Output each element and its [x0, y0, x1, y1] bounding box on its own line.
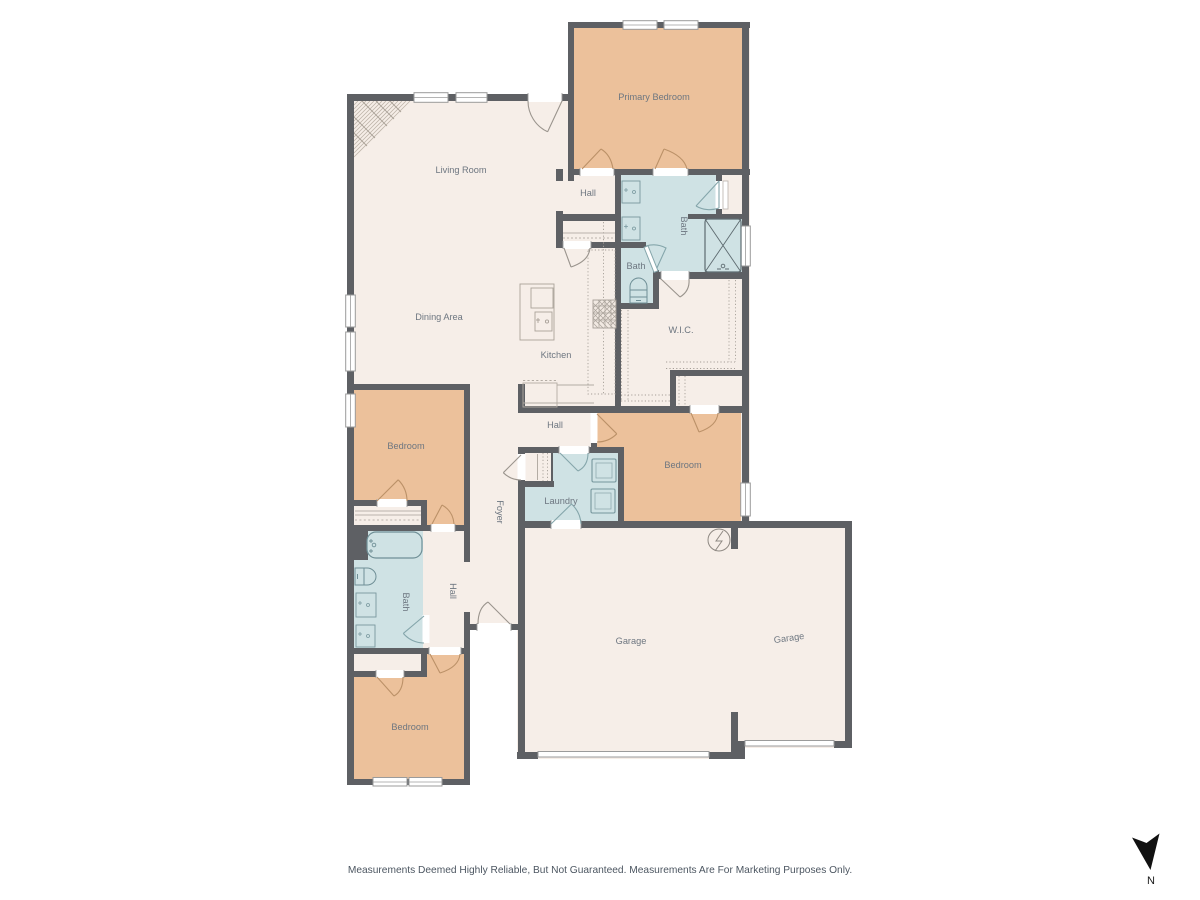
svg-text:Primary Bedroom: Primary Bedroom	[618, 92, 690, 102]
svg-text:Bedroom: Bedroom	[387, 441, 425, 451]
svg-text:Hall: Hall	[547, 420, 563, 430]
svg-text:Dining Area: Dining Area	[415, 312, 463, 322]
svg-text:Measurements Deemed Highly Rel: Measurements Deemed Highly Reliable, But…	[348, 865, 852, 876]
svg-text:Bath: Bath	[627, 261, 646, 271]
svg-text:Bath: Bath	[679, 217, 689, 236]
svg-text:Hall: Hall	[580, 188, 596, 198]
svg-text:Living Room: Living Room	[435, 165, 486, 175]
svg-text:N: N	[1147, 875, 1155, 887]
svg-text:Bath: Bath	[401, 593, 411, 612]
svg-text:W.I.C.: W.I.C.	[668, 325, 693, 335]
svg-text:Laundry: Laundry	[544, 496, 578, 506]
svg-text:Bedroom: Bedroom	[391, 722, 429, 732]
svg-text:Foyer: Foyer	[495, 500, 505, 524]
svg-text:Bedroom: Bedroom	[664, 460, 702, 470]
svg-text:Garage: Garage	[616, 636, 647, 646]
svg-text:Kitchen: Kitchen	[541, 350, 572, 360]
svg-text:Hall: Hall	[448, 583, 458, 599]
